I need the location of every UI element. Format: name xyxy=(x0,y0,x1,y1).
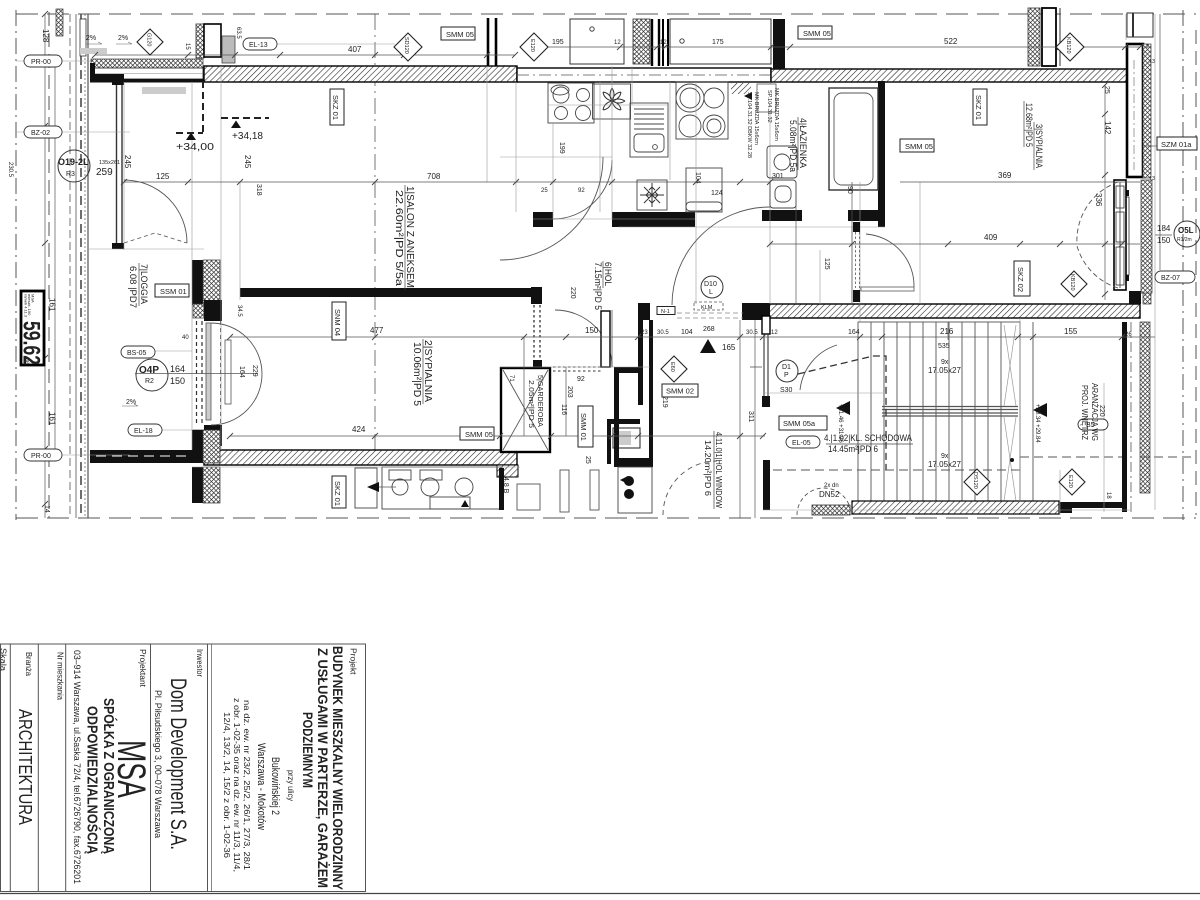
svg-text:14.45m²|PD 6: 14.45m²|PD 6 xyxy=(828,444,878,455)
svg-text:na dz. ew. nr 23/2, 25/2, 26/1: na dz. ew. nr 23/2, 25/2, 26/1, 27/3, 28… xyxy=(242,700,252,870)
svg-text:SMM 05: SMM 05 xyxy=(905,142,933,151)
svg-text:KB120: KB120 xyxy=(1069,274,1075,291)
svg-text:407: 407 xyxy=(348,45,362,54)
svg-text:4|ŁAZIENKA: 4|ŁAZIENKA xyxy=(798,118,808,168)
svg-text:25: 25 xyxy=(584,456,591,464)
svg-text:161: 161 xyxy=(48,298,57,312)
svg-text:PR-00: PR-00 xyxy=(31,59,51,66)
svg-text:175: 175 xyxy=(712,39,724,46)
svg-text:125: 125 xyxy=(156,172,170,181)
svg-text:229: 229 xyxy=(251,365,258,377)
svg-text:23: 23 xyxy=(641,330,648,336)
svg-text:z obr. 1-02-35 oraz na dz. ew.: z obr. 1-02-35 oraz na dz. ew. nr 11/3, … xyxy=(232,698,242,872)
svg-text:63.5: 63.5 xyxy=(235,27,241,39)
svg-text:D1: D1 xyxy=(782,364,791,371)
svg-text:2x dn: 2x dn xyxy=(824,483,839,489)
svg-text:SMM 02: SMM 02 xyxy=(666,389,694,396)
svg-text:6|HOL: 6|HOL xyxy=(603,262,613,286)
svg-text:2: 2 xyxy=(1146,44,1149,50)
svg-text:Inwestor: Inwestor xyxy=(195,649,205,677)
svg-text:3|SYPIALNIA: 3|SYPIALNIA xyxy=(1034,124,1044,168)
svg-text:142: 142 xyxy=(1103,121,1112,135)
svg-text:S30: S30 xyxy=(780,387,793,394)
svg-text:Dom Development S.A.: Dom Development S.A. xyxy=(166,678,191,850)
svg-text:P: P xyxy=(784,372,789,379)
svg-text:22.60m²|PD 5/5a: 22.60m²|PD 5/5a xyxy=(393,190,404,287)
svg-text:245: 245 xyxy=(123,155,132,169)
svg-text:7|LOGGIA: 7|LOGGIA xyxy=(139,264,149,304)
svg-text:2.05m²|PD 5: 2.05m²|PD 5 xyxy=(527,380,536,428)
svg-text:R2: R2 xyxy=(145,378,154,385)
svg-text:2|SYPIALNIA: 2|SYPIALNIA xyxy=(422,340,433,402)
svg-text:311: 311 xyxy=(747,411,754,422)
svg-text:104: 104 xyxy=(694,172,701,184)
svg-text:369: 369 xyxy=(998,171,1012,180)
svg-text:125: 125 xyxy=(823,258,830,270)
svg-text:BZ-07: BZ-07 xyxy=(1161,275,1180,282)
svg-text:12: 12 xyxy=(614,40,621,46)
svg-text:EL-18: EL-18 xyxy=(134,428,153,435)
svg-text:Projektant: Projektant xyxy=(138,649,148,688)
svg-text:SNM 04: SNM 04 xyxy=(333,309,342,336)
svg-text:O4P: O4P xyxy=(139,365,159,376)
svg-text:Projekt: Projekt xyxy=(349,648,359,675)
svg-text:9x: 9x xyxy=(941,359,949,366)
svg-text:59.62: 59.62 xyxy=(18,321,45,365)
svg-text:15: 15 xyxy=(184,43,190,50)
svg-text:318: 318 xyxy=(255,184,262,196)
svg-text:SP.104.31.32: SP.104.31.32 xyxy=(766,90,772,123)
svg-text:SSM 01: SSM 01 xyxy=(160,287,187,296)
svg-text:135x261: 135x261 xyxy=(99,160,120,166)
svg-text:14: 14 xyxy=(43,505,50,513)
svg-text:SKZ 01: SKZ 01 xyxy=(331,95,340,120)
svg-text:40: 40 xyxy=(182,335,189,341)
svg-text:Bukowińskiej 2: Bukowińskiej 2 xyxy=(269,757,281,815)
svg-text:17.05x27: 17.05x27 xyxy=(928,366,961,375)
svg-text:+34,00: +34,00 xyxy=(176,142,215,153)
svg-text:KLM: KLM xyxy=(701,305,713,311)
svg-text:SMM 05a: SMM 05a xyxy=(783,419,816,428)
svg-text:BZ-02: BZ-02 xyxy=(31,130,50,137)
svg-text:164: 164 xyxy=(170,364,185,374)
svg-text:522: 522 xyxy=(944,37,958,46)
svg-text:161: 161 xyxy=(48,412,57,426)
svg-text:12/4, 13/2, 14, 15/2 z obr. 1-: 12/4, 13/2, 14, 15/2 z obr. 1-02-36 xyxy=(222,712,232,858)
svg-text:ARCHITEKTURA: ARCHITEKTURA xyxy=(15,709,35,825)
svg-text:R3: R3 xyxy=(66,171,75,178)
svg-text:150: 150 xyxy=(1157,236,1171,245)
svg-text:165: 165 xyxy=(722,343,736,352)
svg-text:4.11.0|1|HOL WINDOW: 4.11.0|1|HOL WINDOW xyxy=(714,432,724,508)
svg-text:Skala: Skala xyxy=(0,648,8,672)
svg-text:116: 116 xyxy=(560,404,567,415)
svg-text:L: L xyxy=(709,289,713,296)
svg-text:6.08 |PD7: 6.08 |PD7 xyxy=(128,266,138,308)
svg-text:14.20m²|PD 6: 14.20m²|PD 6 xyxy=(703,440,713,496)
svg-text:10.06m²|PD 5: 10.06m²|PD 5 xyxy=(411,342,422,406)
svg-text:25: 25 xyxy=(1103,86,1110,94)
svg-text:Nr mieszkania: Nr mieszkania xyxy=(56,652,66,700)
svg-text:219: 219 xyxy=(661,396,668,408)
svg-text:216: 216 xyxy=(940,327,954,336)
svg-text:SKZ 01: SKZ 01 xyxy=(333,481,342,506)
svg-text:DS120: DS120 xyxy=(972,472,978,489)
svg-text:SD120: SD120 xyxy=(403,37,409,54)
svg-text:12.68m²|PD 5: 12.68m²|PD 5 xyxy=(1024,103,1034,147)
svg-text:230.5: 230.5 xyxy=(7,162,13,178)
svg-text:708: 708 xyxy=(427,172,441,181)
svg-text:71: 71 xyxy=(508,375,514,382)
svg-text:30.5: 30.5 xyxy=(746,330,758,336)
svg-text:ARANŻACJA WG: ARANŻACJA WG xyxy=(1090,383,1099,441)
svg-text:SMM 05: SMM 05 xyxy=(803,29,831,38)
svg-text:E60: E60 xyxy=(669,362,675,372)
svg-text:2%: 2% xyxy=(126,399,136,406)
svg-text:9x: 9x xyxy=(941,453,949,460)
svg-text:N-1: N-1 xyxy=(661,309,670,315)
svg-text:SKZ 02: SKZ 02 xyxy=(1016,267,1025,292)
svg-text:E120: E120 xyxy=(1067,475,1073,488)
svg-text:SP.104.31.32 DBKW 32.28: SP.104.31.32 DBKW 32.28 xyxy=(746,92,752,158)
svg-text:+34,18: +34,18 xyxy=(232,131,263,142)
svg-text:R1/2m: R1/2m xyxy=(1177,237,1192,243)
svg-text:424: 424 xyxy=(352,425,366,434)
svg-text:+31.46 +31.96: +31.46 +31.96 xyxy=(837,404,843,443)
svg-text:12: 12 xyxy=(771,330,778,336)
svg-text:195: 195 xyxy=(552,39,564,46)
svg-text:7.15m²|PD 5: 7.15m²|PD 5 xyxy=(593,262,603,310)
svg-text:104: 104 xyxy=(681,329,693,336)
svg-text:MK BRUZDA 15x6cm: MK BRUZDA 15x6cm xyxy=(773,88,779,141)
svg-text:DN52: DN52 xyxy=(819,490,840,499)
svg-text:92: 92 xyxy=(577,376,585,383)
svg-text:03–914 Warszawa, ul.Saska 72/4: 03–914 Warszawa, ul.Saska 72/4, tel.6726… xyxy=(71,650,82,884)
svg-text:1|SALON Z ANEKSEM: 1|SALON Z ANEKSEM xyxy=(404,186,415,288)
svg-text:2%: 2% xyxy=(86,35,96,42)
svg-text:34.5: 34.5 xyxy=(236,305,242,317)
svg-text:13: 13 xyxy=(1149,59,1155,65)
svg-text:EL-13: EL-13 xyxy=(249,42,268,49)
svg-text:184: 184 xyxy=(1157,224,1171,233)
svg-text:4.8 B: 4.8 B xyxy=(502,477,509,494)
svg-text:18: 18 xyxy=(1105,492,1111,499)
svg-text:ODPOWIEDZIALNOŚCIĄ: ODPOWIEDZIALNOŚCIĄ xyxy=(84,706,102,854)
svg-text:D10: D10 xyxy=(704,281,717,288)
svg-text:199: 199 xyxy=(558,142,565,154)
svg-text:ramek 4.11.3: ramek 4.11.3 xyxy=(24,294,29,318)
svg-text:m²: m² xyxy=(24,358,30,364)
svg-text:MK BRUZDA 15x6cm: MK BRUZDA 15x6cm xyxy=(753,92,759,145)
svg-text:5.08m²|PD 5a: 5.08m²|PD 5a xyxy=(788,120,798,172)
svg-text:150: 150 xyxy=(170,376,185,386)
svg-text:2%: 2% xyxy=(118,35,128,42)
svg-text:164: 164 xyxy=(238,366,245,378)
svg-text:164: 164 xyxy=(848,329,860,336)
svg-text:124: 124 xyxy=(711,190,723,197)
svg-text:przy ulicy: przy ulicy xyxy=(286,770,296,802)
svg-text:SMM 05: SMM 05 xyxy=(465,430,493,439)
svg-text:477: 477 xyxy=(370,326,384,335)
svg-text:O5L: O5L xyxy=(1178,226,1194,235)
svg-text:268: 268 xyxy=(703,326,715,333)
svg-text:155: 155 xyxy=(1064,327,1078,336)
svg-text:5|GARDEROBA: 5|GARDEROBA xyxy=(536,375,545,427)
svg-text:Branża: Branża xyxy=(24,652,34,676)
svg-text:SMM 05: SMM 05 xyxy=(446,30,474,39)
svg-text:336: 336 xyxy=(1094,193,1103,207)
svg-text:301: 301 xyxy=(772,173,784,180)
svg-text:92: 92 xyxy=(578,188,585,194)
svg-text:17.05x27: 17.05x27 xyxy=(928,460,961,469)
svg-text:G120: G120 xyxy=(146,33,152,46)
svg-text:150: 150 xyxy=(585,326,599,335)
svg-text:PODZIEMNYM: PODZIEMNYM xyxy=(300,712,316,788)
svg-text:203: 203 xyxy=(566,386,573,398)
svg-text:PR-00: PR-00 xyxy=(31,453,51,460)
svg-text:535: 535 xyxy=(938,343,950,350)
svg-text:Z USŁUGAMI W PARTERZE, GARAŻEM: Z USŁUGAMI W PARTERZE, GARAŻEM xyxy=(315,648,331,888)
svg-text:128: 128 xyxy=(41,29,50,43)
svg-text:BUDYNEK MIESZKALNY WIELORODZIN: BUDYNEK MIESZKALNY WIELORODZINNY xyxy=(330,646,346,891)
svg-text:409: 409 xyxy=(984,233,998,242)
svg-text:245: 245 xyxy=(243,155,252,169)
svg-text:SZM 01a: SZM 01a xyxy=(1161,140,1192,149)
svg-text:Warszawa - Mokotów: Warszawa - Mokotów xyxy=(255,743,267,830)
svg-text:25: 25 xyxy=(541,188,548,194)
svg-text:26: 26 xyxy=(1125,332,1132,338)
svg-text:O19-2L: O19-2L xyxy=(58,157,89,167)
svg-text:E120: E120 xyxy=(529,39,535,52)
svg-text:KB120: KB120 xyxy=(1065,37,1071,54)
svg-text:30.5: 30.5 xyxy=(657,330,669,336)
svg-text:BS-05: BS-05 xyxy=(127,350,147,357)
svg-text:EL-05: EL-05 xyxy=(792,440,811,447)
svg-text:90: 90 xyxy=(846,186,853,194)
svg-text:SKZ 01: SKZ 01 xyxy=(974,95,983,120)
svg-text:SPÓŁKA Z OGRANICZONĄ: SPÓŁKA Z OGRANICZONĄ xyxy=(100,698,118,854)
svg-text:220: 220 xyxy=(1098,405,1105,417)
svg-text:220: 220 xyxy=(569,287,576,299)
svg-text:259: 259 xyxy=(96,167,113,178)
svg-text:+29.34 +29.84: +29.34 +29.84 xyxy=(1034,404,1040,443)
svg-text:PROJ. WNĘTRZ: PROJ. WNĘTRZ xyxy=(1080,385,1089,440)
svg-text:12: 12 xyxy=(660,40,667,46)
svg-text:SMM 01: SMM 01 xyxy=(579,413,588,441)
